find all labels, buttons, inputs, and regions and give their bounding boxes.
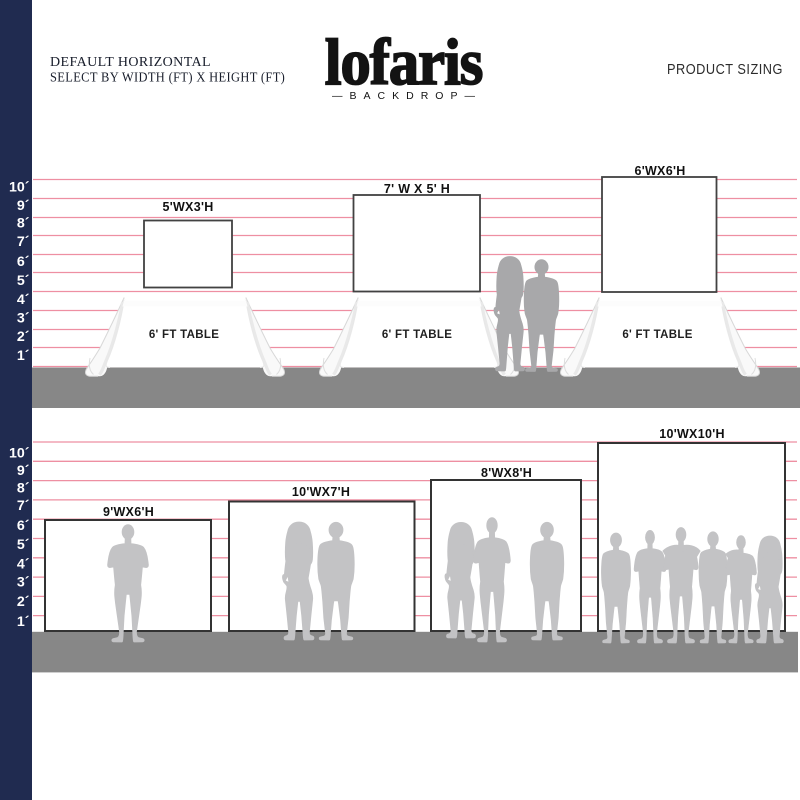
svg-text:3´: 3´ <box>17 311 30 327</box>
svg-text:8'WX8'H: 8'WX8'H <box>481 466 532 480</box>
svg-text:7´: 7´ <box>17 234 30 250</box>
svg-text:9´: 9´ <box>17 463 30 479</box>
svg-text:2´: 2´ <box>17 594 30 610</box>
svg-text:10´: 10´ <box>9 446 30 462</box>
svg-text:DEFAULT HORIZONTAL: DEFAULT HORIZONTAL <box>50 55 211 70</box>
svg-text:10'WX7'H: 10'WX7'H <box>292 485 350 499</box>
svg-text:4´: 4´ <box>17 557 30 573</box>
svg-text:7' W X 5' H: 7' W X 5' H <box>384 182 450 196</box>
svg-text:1´: 1´ <box>17 614 30 630</box>
svg-text:8´: 8´ <box>17 216 30 232</box>
svg-text:5´: 5´ <box>17 273 30 289</box>
svg-text:6´: 6´ <box>17 518 30 534</box>
svg-text:10´: 10´ <box>9 180 30 196</box>
svg-text:3´: 3´ <box>17 575 30 591</box>
svg-text:7´: 7´ <box>17 498 30 514</box>
svg-text:6' FT TABLE: 6' FT TABLE <box>382 329 452 341</box>
svg-text:5'WX3'H: 5'WX3'H <box>162 200 213 214</box>
svg-text:SELECT BY WIDTH (FT) X HEIGHT: SELECT BY WIDTH (FT) X HEIGHT (FT) <box>50 69 285 85</box>
svg-text:4´: 4´ <box>17 292 30 308</box>
svg-text:5´: 5´ <box>17 537 30 553</box>
svg-text:—BACKDROP—: —BACKDROP— <box>332 90 482 102</box>
svg-text:6' FT TABLE: 6' FT TABLE <box>622 329 692 341</box>
svg-text:1´: 1´ <box>17 348 30 364</box>
svg-text:10'WX10'H: 10'WX10'H <box>659 427 725 441</box>
svg-text:2´: 2´ <box>17 329 30 345</box>
svg-text:6' FT TABLE: 6' FT TABLE <box>149 329 219 341</box>
svg-text:9´: 9´ <box>17 198 30 214</box>
svg-text:PRODUCT SIZING: PRODUCT SIZING <box>667 60 783 77</box>
svg-text:6´: 6´ <box>17 254 30 270</box>
svg-text:9'WX6'H: 9'WX6'H <box>103 505 154 519</box>
svg-text:lofaris: lofaris <box>325 26 483 99</box>
svg-text:8´: 8´ <box>17 481 30 497</box>
svg-text:6'WX6'H: 6'WX6'H <box>634 164 685 178</box>
